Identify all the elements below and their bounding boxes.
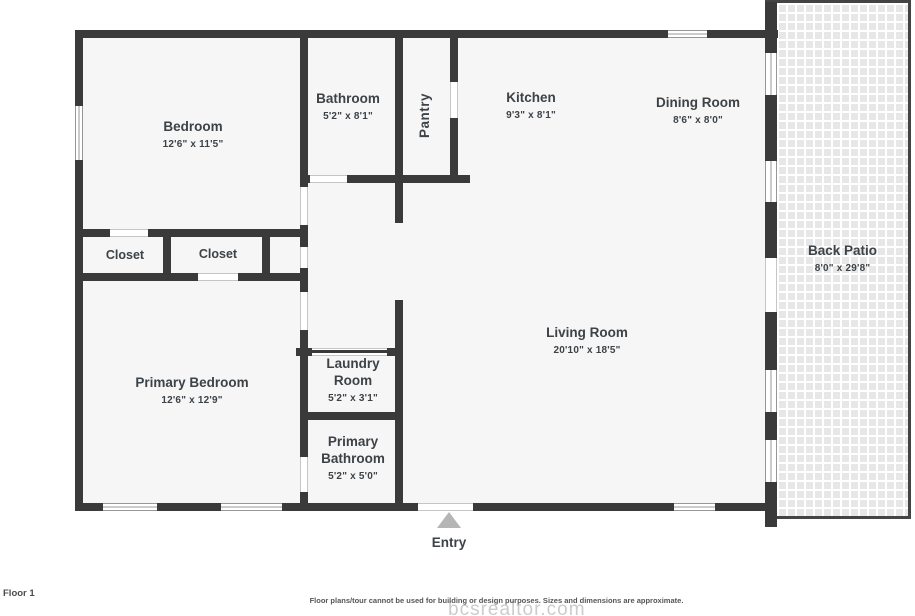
wall-laundry-top-right bbox=[387, 348, 403, 356]
room-dims: 9'3" x 8'1" bbox=[471, 110, 591, 123]
room-label-living-room: Living Room 20'10" x 18'5" bbox=[507, 325, 667, 357]
room-name: Closet bbox=[178, 247, 258, 263]
opening-alcove bbox=[300, 247, 308, 268]
room-label-dining-room: Dining Room 8'6" x 8'0" bbox=[628, 95, 768, 127]
door-closet-1 bbox=[110, 229, 148, 237]
floor-label: Floor 1 bbox=[3, 588, 35, 599]
room-name: Dining Room bbox=[628, 95, 768, 112]
room-label-bedroom: Bedroom 12'6" x 11'5" bbox=[103, 119, 283, 151]
window-dining-top bbox=[665, 30, 710, 38]
room-dims: 12'6" x 12'9" bbox=[102, 395, 282, 408]
room-label-laundry-room: Laundry Room 5'2" x 3'1" bbox=[313, 356, 393, 405]
door-pantry bbox=[450, 82, 458, 118]
patio-border-right bbox=[908, 0, 911, 519]
patio-border-bottom bbox=[777, 516, 911, 519]
window-primary-bedroom-1 bbox=[100, 503, 160, 511]
room-dims: 5'2" x 5'0" bbox=[308, 471, 398, 484]
door-entry bbox=[418, 503, 473, 511]
room-name: Primary Bathroom bbox=[308, 434, 398, 468]
window-patio-2 bbox=[765, 158, 777, 205]
window-primary-bedroom-2 bbox=[218, 503, 285, 511]
wall-closet-bottom bbox=[75, 273, 308, 281]
room-dims: 20'10" x 18'5" bbox=[507, 345, 667, 358]
door-bedroom bbox=[300, 187, 308, 225]
room-label-primary-bedroom: Primary Bedroom 12'6" x 12'9" bbox=[102, 375, 282, 407]
window-patio-3 bbox=[765, 367, 777, 415]
wall-laundry-top-left bbox=[296, 348, 312, 356]
wall-pantry-west bbox=[395, 30, 403, 223]
room-label-back-patio: Back Patio 8'0" x 29'8" bbox=[777, 243, 908, 275]
room-dims: 5'2" x 3'1" bbox=[313, 393, 393, 406]
patio-border-top bbox=[765, 0, 911, 3]
room-dims: 8'0" x 29'8" bbox=[777, 263, 908, 276]
room-dims: 12'6" x 11'5" bbox=[103, 139, 283, 152]
window-patio-1 bbox=[765, 50, 777, 98]
room-name: Primary Bedroom bbox=[102, 375, 282, 392]
room-name: Laundry Room bbox=[313, 356, 393, 390]
wall-laundry-bath-divider bbox=[300, 412, 403, 420]
room-label-primary-bathroom: Primary Bathroom 5'2" x 5'0" bbox=[308, 434, 398, 483]
room-label-bathroom: Bathroom 5'2" x 8'1" bbox=[288, 91, 408, 123]
door-bathroom bbox=[310, 175, 347, 183]
entry-arrow-icon bbox=[437, 512, 461, 528]
window-bedroom-left bbox=[75, 103, 83, 163]
room-name: Bathroom bbox=[288, 91, 408, 108]
door-primary-bathroom bbox=[300, 457, 308, 492]
room-dims: 8'6" x 8'0" bbox=[628, 115, 768, 128]
window-patio-4 bbox=[765, 437, 777, 485]
door-primary-bedroom bbox=[300, 292, 308, 330]
room-label-closet-1: Closet bbox=[85, 248, 165, 264]
entry-label: Entry bbox=[409, 535, 489, 550]
room-label-pantry: Pantry bbox=[417, 74, 432, 138]
door-laundry bbox=[312, 348, 387, 356]
door-patio bbox=[765, 258, 777, 312]
window-living-bottom bbox=[671, 503, 718, 511]
door-closet-2 bbox=[198, 273, 238, 281]
room-name: Back Patio bbox=[777, 243, 908, 260]
disclaimer-text: Floor plans/tour cannot be used for buil… bbox=[78, 596, 915, 605]
room-label-kitchen: Kitchen 9'3" x 8'1" bbox=[471, 90, 591, 122]
room-name: Closet bbox=[85, 248, 165, 264]
room-name: Kitchen bbox=[471, 90, 591, 107]
room-name: Bedroom bbox=[103, 119, 283, 136]
room-dims: 5'2" x 8'1" bbox=[288, 111, 408, 124]
floor-plan: Bedroom 12'6" x 11'5" Bathroom 5'2" x 8'… bbox=[0, 0, 915, 616]
wall-alcove-stub bbox=[262, 237, 270, 273]
room-label-closet-2: Closet bbox=[178, 247, 258, 263]
room-name: Living Room bbox=[507, 325, 667, 342]
